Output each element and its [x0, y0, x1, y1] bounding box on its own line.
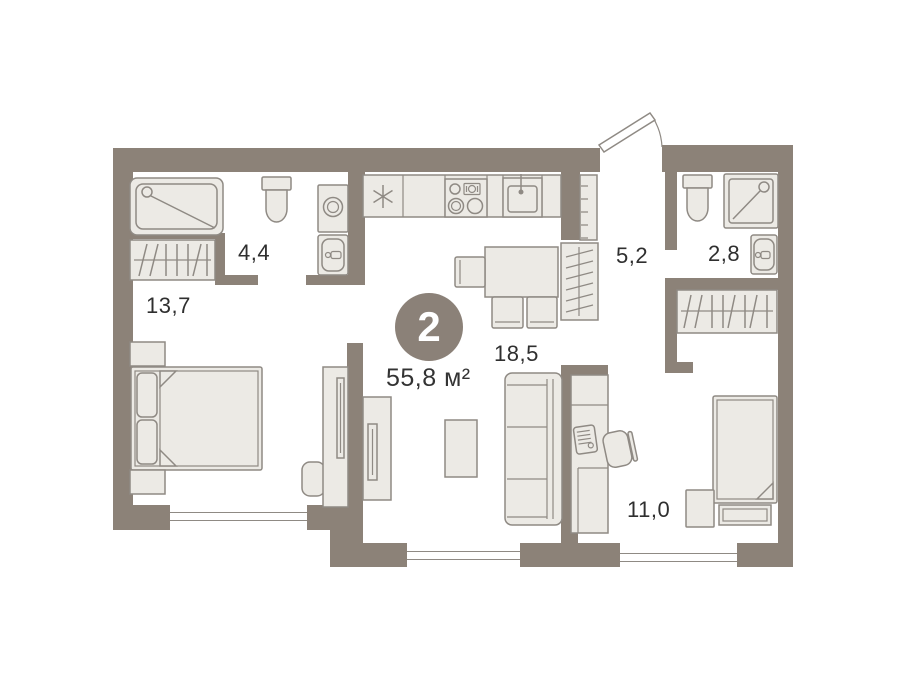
desk-chair-icon: [602, 428, 639, 468]
bathtub-icon: [130, 178, 223, 235]
double-bed-icon: [131, 367, 262, 470]
kitchen-sink-icon: [503, 174, 542, 217]
rooms-count-badge: 2: [395, 293, 463, 361]
laptop-icon: [573, 425, 598, 455]
room-label-bathroom-2: 2,8: [708, 241, 740, 267]
tv-console-icon-living: [363, 397, 391, 500]
washing-machine-icon: [318, 185, 348, 232]
dresser-tv-icon-bedroom1: [323, 367, 348, 507]
entrance-door-icon: [599, 113, 662, 152]
dining-chair-2: [527, 297, 557, 328]
dining-chair-left: [455, 257, 485, 287]
nightstand-icon-2: [130, 470, 165, 494]
coffee-table-icon: [445, 420, 477, 477]
total-area-label: 55,8 м²: [386, 364, 471, 393]
sofa-icon: [505, 373, 562, 525]
sink-icon-bath2: [751, 235, 777, 274]
toilet-icon-bath2: [683, 175, 712, 221]
rooms-count: 2: [417, 306, 440, 348]
desk-icon: [571, 375, 608, 533]
dining-chair-1: [492, 297, 523, 328]
pouf-icon: [302, 462, 325, 496]
wardrobe-icon-bedroom1: [130, 240, 215, 280]
room-label-living-kitchen: 18,5: [494, 341, 539, 367]
single-bed-icon: [713, 396, 777, 525]
sink-icon-bath1: [318, 235, 348, 275]
dining-table: [485, 247, 558, 297]
hallway-wardrobe-icon: [561, 243, 598, 320]
stove-icon: [445, 179, 487, 217]
floor-plan: 13,7 4,4 5,2 2,8 18,5 11,0 2 55,8 м²: [0, 0, 907, 681]
toilet-icon-bath1: [262, 177, 291, 222]
room-label-bedroom-1: 13,7: [146, 293, 191, 319]
room-label-hallway: 5,2: [616, 243, 648, 269]
nightstand-icon-1: [130, 342, 165, 366]
wardrobe-icon-bedroom2: [677, 290, 777, 333]
room-label-bedroom-2: 11,0: [627, 497, 670, 523]
room-label-bathroom-1: 4,4: [238, 240, 270, 266]
shower-icon: [724, 174, 778, 228]
nightstand-icon-bedroom2: [686, 490, 714, 527]
shelf-unit-icon: [580, 175, 597, 240]
